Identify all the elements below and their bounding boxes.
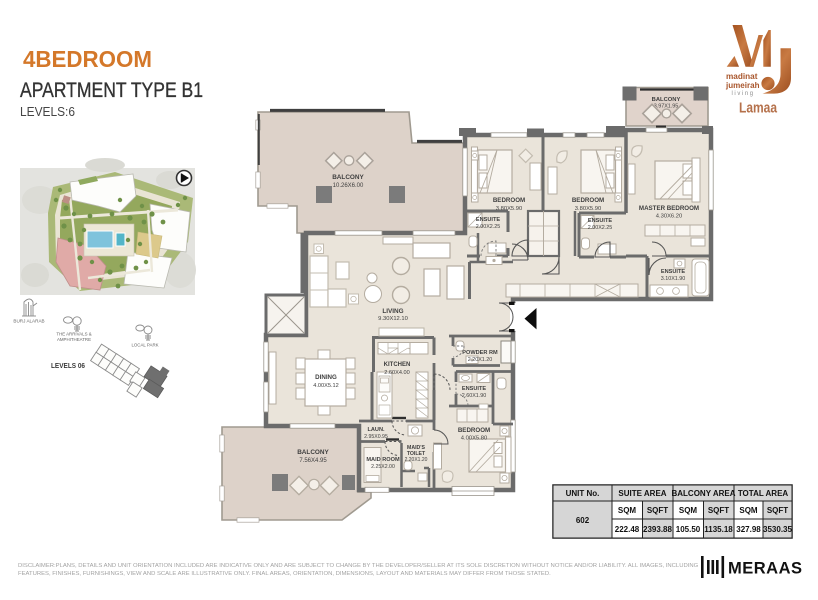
svg-text:TOTAL AREA: TOTAL AREA [738, 489, 789, 498]
svg-text:LIVING: LIVING [382, 308, 403, 315]
svg-text:THE ARRIVALS &: THE ARRIVALS & [56, 332, 91, 337]
svg-text:MAID ROOM: MAID ROOM [366, 457, 400, 463]
svg-text:SQM: SQM [739, 506, 758, 515]
svg-text:2.20X1.20: 2.20X1.20 [468, 357, 493, 363]
svg-text:SQFT: SQFT [647, 506, 668, 515]
svg-text:4BEDROOM: 4BEDROOM [23, 46, 152, 72]
svg-text:BALCONY: BALCONY [332, 174, 364, 181]
svg-text:ENSUITE: ENSUITE [588, 218, 613, 224]
svg-text:2.60X4.00: 2.60X4.00 [384, 370, 410, 376]
svg-text:LOCAL PARK: LOCAL PARK [131, 343, 158, 348]
svg-text:2.20X1.20: 2.20X1.20 [405, 457, 428, 463]
svg-text:SQM: SQM [618, 506, 637, 515]
svg-text:7.56X4.95: 7.56X4.95 [299, 458, 327, 464]
svg-text:2.60X1.90: 2.60X1.90 [462, 393, 487, 399]
svg-text:3.10X1.90: 3.10X1.90 [661, 276, 686, 282]
svg-text:222.48: 222.48 [615, 525, 640, 534]
svg-text:3530.35: 3530.35 [763, 525, 792, 534]
svg-text:jumeirah: jumeirah [725, 80, 759, 90]
svg-text:BALCONY: BALCONY [652, 97, 681, 103]
svg-text:APARTMENT TYPE B1: APARTMENT TYPE B1 [20, 78, 203, 102]
svg-text:3.80X5.90: 3.80X5.90 [496, 206, 522, 212]
svg-text:LEVELS:6: LEVELS:6 [20, 105, 75, 119]
svg-text:Lamaa: Lamaa [739, 101, 778, 117]
svg-text:3.80X5.90: 3.80X5.90 [575, 206, 601, 212]
svg-text:105.50: 105.50 [676, 525, 701, 534]
svg-text:10.26X6.00: 10.26X6.00 [333, 183, 364, 189]
svg-text:9.30X12.10: 9.30X12.10 [378, 316, 408, 322]
svg-text:SQFT: SQFT [708, 506, 729, 515]
svg-text:BEDROOM: BEDROOM [572, 197, 604, 204]
svg-text:BALCONY AREA: BALCONY AREA [671, 489, 735, 498]
svg-text:602: 602 [576, 516, 590, 525]
svg-text:1135.18: 1135.18 [704, 525, 733, 534]
svg-text:FEATURES, FINISHES, FURNISHING: FEATURES, FINISHES, FURNISHINGS, VIEW AN… [18, 571, 551, 577]
svg-text:BEDROOM: BEDROOM [493, 197, 525, 204]
svg-text:MERAAS: MERAAS [728, 560, 803, 578]
svg-text:2.00X2.25: 2.00X2.25 [588, 225, 613, 231]
svg-text:KITCHEN: KITCHEN [384, 362, 411, 368]
svg-text:327.98: 327.98 [736, 525, 761, 534]
svg-text:4.00X5.80: 4.00X5.80 [461, 436, 487, 442]
svg-text:LAUN.: LAUN. [367, 427, 385, 433]
svg-text:SQM: SQM [679, 506, 698, 515]
svg-text:UNIT No.: UNIT No. [566, 489, 600, 498]
svg-text:2393.88: 2393.88 [643, 525, 672, 534]
svg-text:BEDROOM: BEDROOM [458, 427, 490, 434]
svg-text:2.25X2.00: 2.25X2.00 [371, 464, 395, 470]
svg-text:4.00X5.12: 4.00X5.12 [313, 383, 339, 389]
svg-text:DINING: DINING [315, 374, 337, 381]
svg-text:DISCLAIMER:PLANS, DETAILS AND: DISCLAIMER:PLANS, DETAILS AND UNIT ORIEN… [18, 563, 699, 569]
svg-text:l i v i n g: l i v i n g [732, 90, 754, 97]
svg-text:ENSUITE: ENSUITE [462, 386, 487, 392]
svg-text:BURJ ALARAB: BURJ ALARAB [13, 319, 44, 324]
svg-text:MASTER BEDROOM: MASTER BEDROOM [639, 205, 699, 212]
svg-text:4.30X6.20: 4.30X6.20 [656, 214, 682, 220]
svg-text:AMPHITHEATRE: AMPHITHEATRE [57, 337, 91, 342]
svg-text:SUITE AREA: SUITE AREA [618, 489, 666, 498]
svg-text:BALCONY: BALCONY [297, 449, 329, 456]
svg-text:SQFT: SQFT [767, 506, 788, 515]
svg-text:ENSUITE: ENSUITE [661, 269, 686, 275]
svg-text:LEVELS 06: LEVELS 06 [51, 361, 85, 370]
svg-text:2.95X0.95: 2.95X0.95 [364, 434, 388, 440]
svg-text:POWDER RM: POWDER RM [462, 350, 498, 356]
svg-text:ENSUITE: ENSUITE [476, 217, 501, 223]
svg-text:2.00X2.25: 2.00X2.25 [476, 224, 501, 230]
